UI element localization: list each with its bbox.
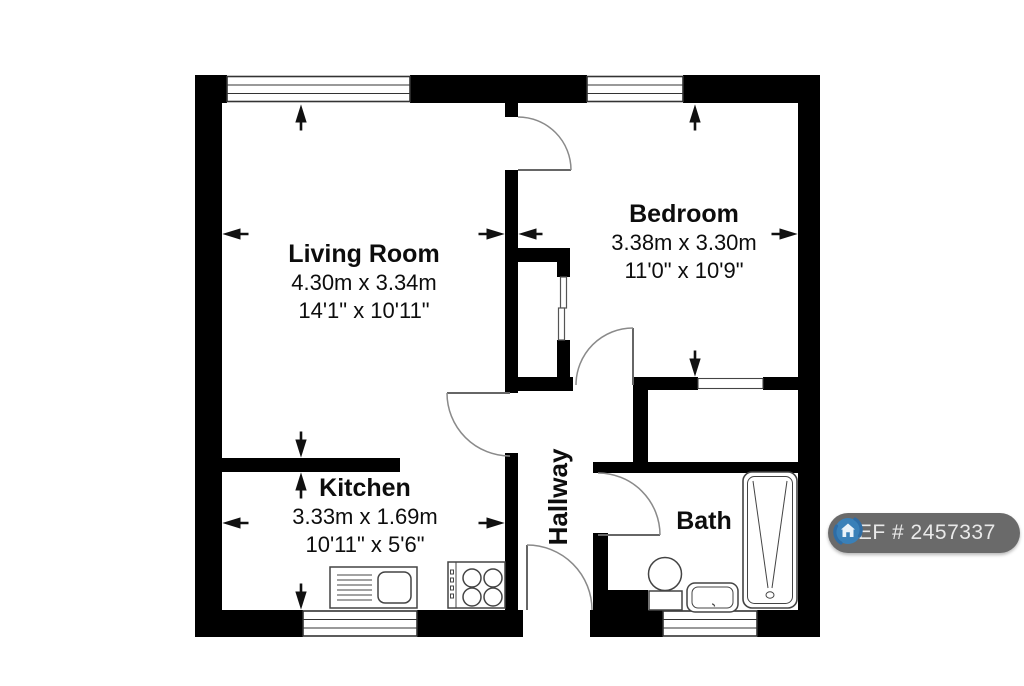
- kitchen-sink-icon: [330, 567, 417, 608]
- floor-plan-drawing: [0, 0, 1024, 686]
- bathtub-icon: [743, 472, 797, 608]
- closet-bifold-door: [559, 277, 567, 340]
- living-bedroom-door-arc: [518, 117, 571, 170]
- front-door-arc: [527, 545, 592, 610]
- bath-title: Bath: [644, 507, 764, 536]
- living-room-window: [227, 77, 410, 102]
- bath-label: Bath: [644, 507, 764, 536]
- bedroom-title: Bedroom: [554, 200, 814, 229]
- house-logo-icon: [830, 513, 866, 549]
- floorplan-page: { "rooms": { "living_room": { "name": "L…: [0, 0, 1024, 686]
- floor-plan: Living Room 4.30m x 3.34m 14'1" x 10'11"…: [0, 0, 1024, 686]
- toilet-icon: [649, 558, 683, 611]
- bath-window: [663, 611, 757, 636]
- wash-basin-icon: [687, 583, 738, 612]
- living-room-label: Living Room 4.30m x 3.34m 14'1" x 10'11": [234, 240, 494, 325]
- hallway-label: Hallway: [543, 447, 573, 547]
- kitchen-metric: 3.33m x 1.69m: [235, 503, 495, 531]
- living-room-door-arc: [447, 393, 510, 456]
- living-room-imperial: 14'1" x 10'11": [234, 297, 494, 325]
- ref-badge: REF # 2457337: [828, 513, 1020, 553]
- kitchen-title: Kitchen: [235, 474, 495, 503]
- kitchen-window: [303, 611, 417, 636]
- bedroom-window: [587, 77, 683, 102]
- bedroom-internal-window: [698, 379, 763, 389]
- hob-icon: [448, 562, 505, 608]
- kitchen-label: Kitchen 3.33m x 1.69m 10'11" x 5'6": [235, 474, 495, 559]
- bedroom-door-arc: [576, 328, 633, 385]
- kitchen-imperial: 10'11" x 5'6": [235, 531, 495, 559]
- bedroom-metric: 3.38m x 3.30m: [554, 229, 814, 257]
- bedroom-label: Bedroom 3.38m x 3.30m 11'0" x 10'9": [554, 200, 814, 285]
- bedroom-imperial: 11'0" x 10'9": [554, 257, 814, 285]
- living-room-metric: 4.30m x 3.34m: [234, 269, 494, 297]
- living-room-title: Living Room: [234, 240, 494, 269]
